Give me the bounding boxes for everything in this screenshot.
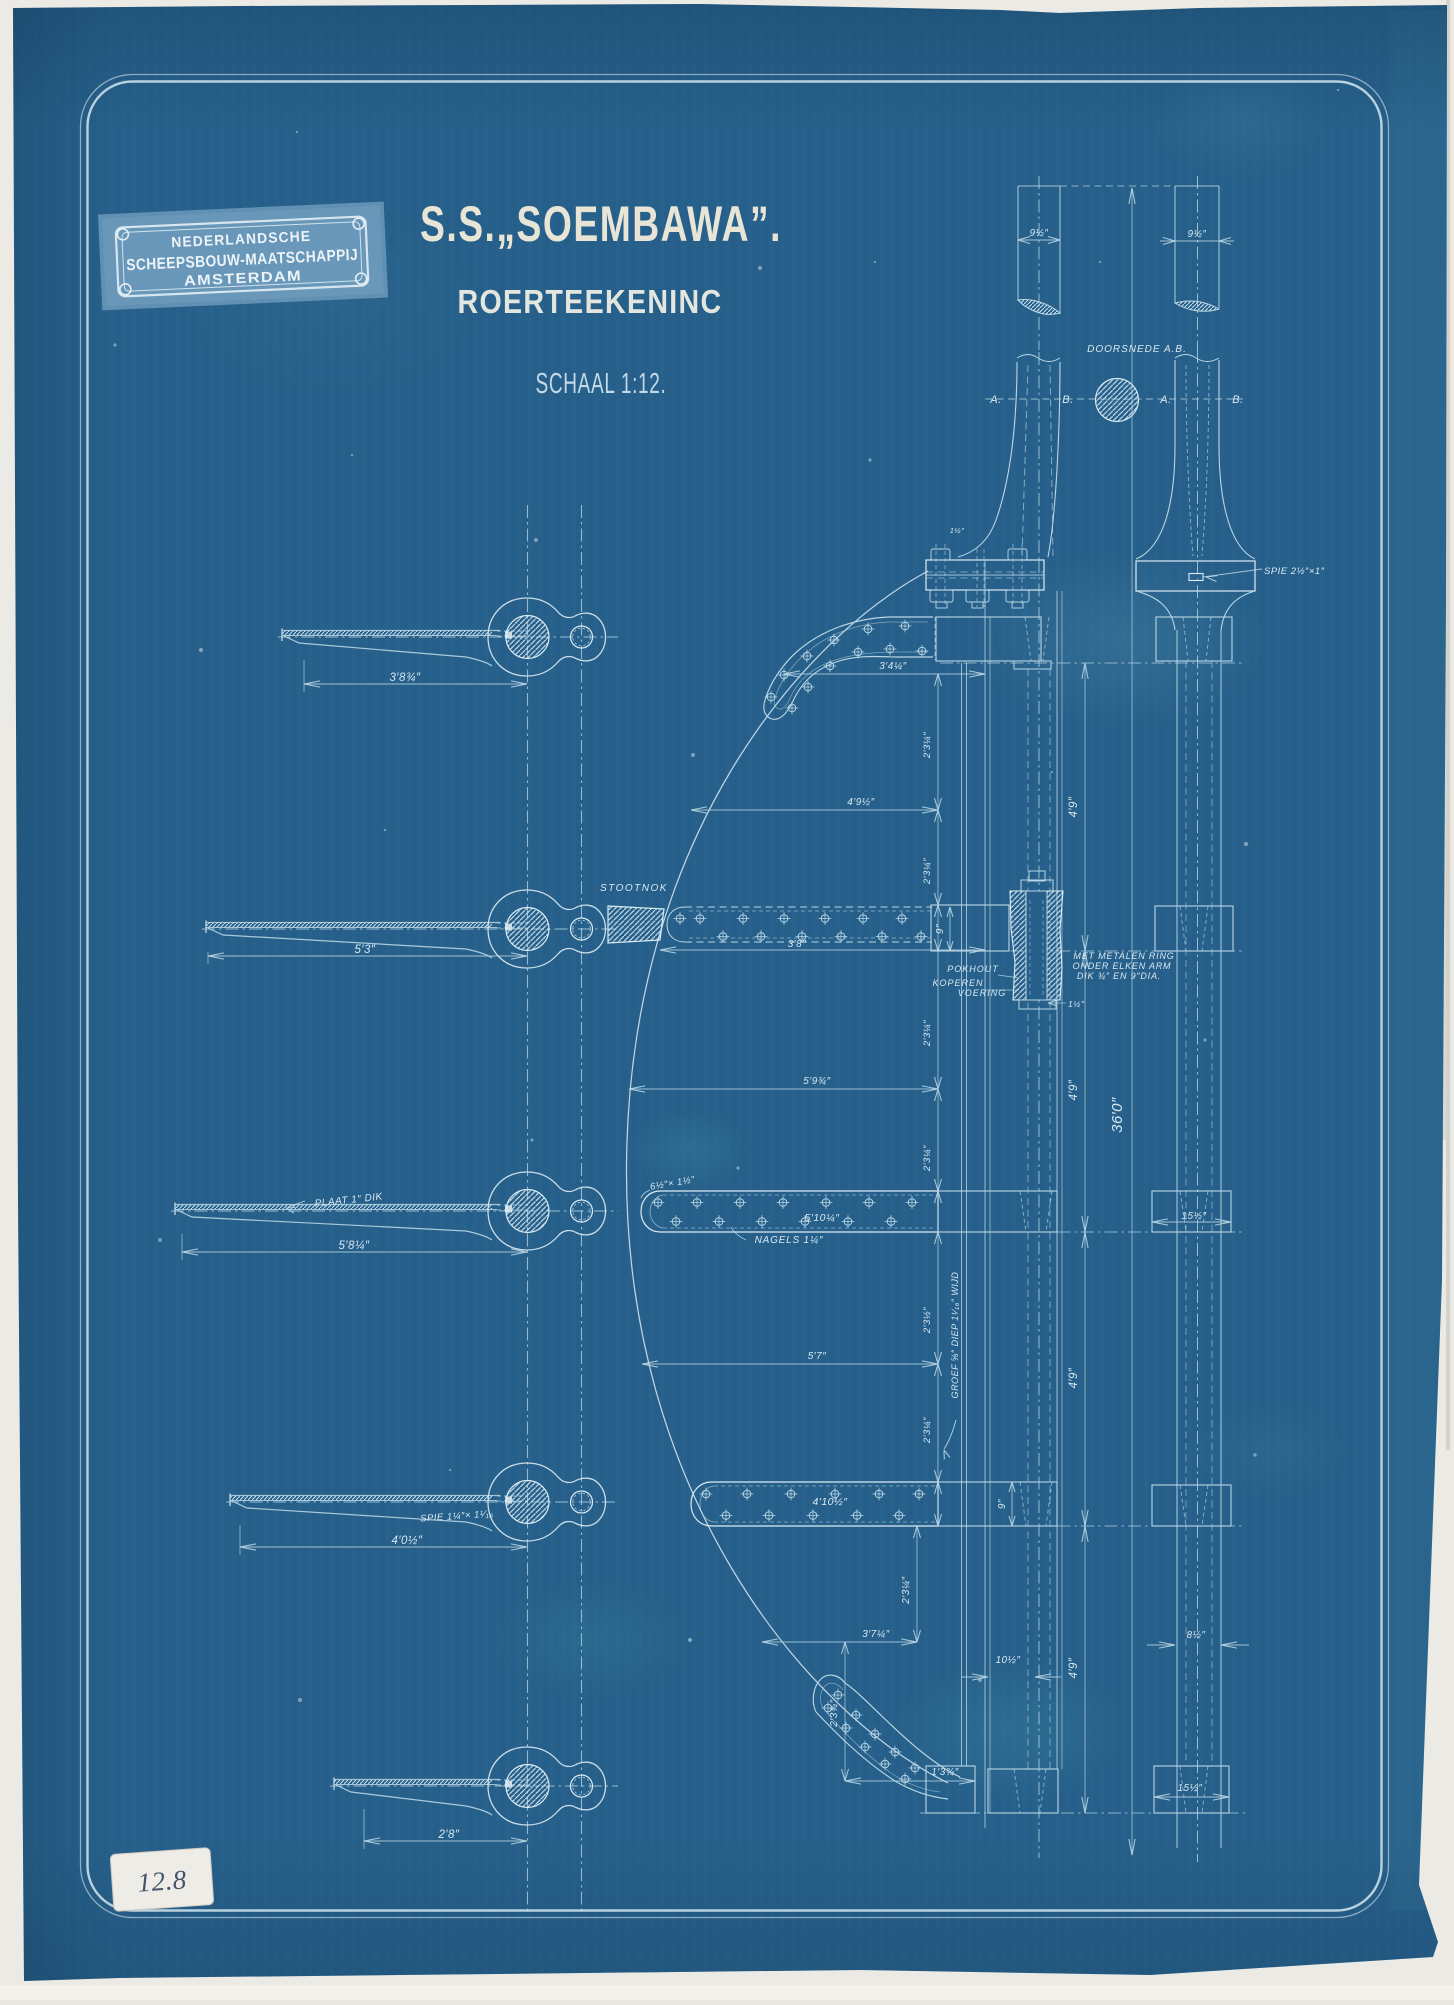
- svg-text:8½″: 8½″: [1187, 1630, 1206, 1641]
- svg-text:5′3″: 5′3″: [354, 944, 375, 956]
- svg-text:5′7″: 5′7″: [808, 1351, 827, 1362]
- svg-text:9″: 9″: [997, 1499, 1008, 1509]
- svg-text:2′8″: 2′8″: [437, 1829, 459, 1841]
- svg-text:10½″: 10½″: [995, 1655, 1020, 1666]
- svg-text:2′3¾″: 2′3¾″: [829, 1699, 840, 1727]
- svg-text:2′3¼″: 2′3¼″: [922, 1145, 933, 1172]
- svg-text:ONDER ELKEN ARM: ONDER ELKEN ARM: [1073, 961, 1172, 971]
- svg-text:15½″: 15½″: [1177, 1783, 1202, 1794]
- svg-text:4′9″: 4′9″: [1068, 1367, 1080, 1388]
- svg-text:B.: B.: [1062, 394, 1073, 406]
- svg-text:2′3¼″: 2′3¼″: [922, 858, 933, 885]
- svg-text:DOORSNEDE A.B.: DOORSNEDE A.B.: [1087, 344, 1187, 355]
- svg-text:SCHAAL 1:12.: SCHAAL 1:12.: [536, 368, 667, 400]
- svg-text:5′10¼″: 5′10¼″: [805, 1212, 841, 1224]
- svg-text:4′0½″: 4′0½″: [391, 1535, 423, 1547]
- svg-text:5′9¾″: 5′9¾″: [803, 1076, 830, 1087]
- svg-text:VOERING: VOERING: [958, 988, 1007, 998]
- svg-text:12.8: 12.8: [136, 1864, 187, 1897]
- svg-text:9½″: 9½″: [1188, 229, 1207, 240]
- svg-text:GROEF ⅝″ DIEP 1¹⁄₁₆″ WIJD: GROEF ⅝″ DIEP 1¹⁄₁₆″ WIJD: [950, 1272, 960, 1399]
- svg-text:3′8¾″: 3′8¾″: [389, 672, 421, 684]
- svg-text:STOOTNOK: STOOTNOK: [600, 883, 668, 894]
- svg-text:A.: A.: [989, 394, 1001, 406]
- svg-text:ROERTEEKENINC: ROERTEEKENINC: [458, 283, 723, 320]
- svg-text:3′8″: 3′8″: [788, 939, 807, 950]
- svg-text:4′9″: 4′9″: [1068, 796, 1080, 817]
- svg-text:2′3¼″: 2′3¼″: [922, 1020, 933, 1047]
- svg-text:5′8¼″: 5′8¼″: [338, 1240, 370, 1252]
- svg-text:9″: 9″: [935, 924, 946, 934]
- svg-text:2′3¼″: 2′3¼″: [922, 1417, 933, 1444]
- svg-text:KOPEREN: KOPEREN: [932, 978, 983, 988]
- svg-text:4′9″: 4′9″: [1068, 1079, 1080, 1100]
- svg-text:MET METALEN RING: MET METALEN RING: [1073, 951, 1174, 961]
- svg-text:4′9″: 4′9″: [1068, 1657, 1080, 1678]
- svg-text:1½″: 1½″: [950, 526, 965, 535]
- svg-text:2′3¼″: 2′3¼″: [900, 1576, 912, 1604]
- svg-text:S.S.„SOEMBAWA”.: S.S.„SOEMBAWA”.: [420, 196, 782, 252]
- svg-text:POKHOUT: POKHOUT: [947, 964, 999, 974]
- svg-text:2′3½″: 2′3½″: [922, 1307, 933, 1334]
- svg-text:4′10½″: 4′10½″: [813, 1496, 849, 1508]
- svg-text:B.: B.: [1232, 394, 1243, 406]
- svg-text:36′0″: 36′0″: [1109, 1097, 1126, 1133]
- svg-text:NAGELS 1¼″: NAGELS 1¼″: [755, 1234, 824, 1246]
- svg-text:SPIE 2½″×1″: SPIE 2½″×1″: [1264, 566, 1325, 577]
- svg-text:1½″: 1½″: [1068, 999, 1085, 1009]
- svg-text:DIK ¾″ EN 9″DIA.: DIK ¾″ EN 9″DIA.: [1077, 971, 1161, 981]
- svg-text:3′7¼″: 3′7¼″: [862, 1628, 889, 1640]
- svg-text:15½″: 15½″: [1181, 1211, 1206, 1222]
- svg-text:3′4¼″: 3′4¼″: [879, 660, 906, 672]
- svg-text:4′9½″: 4′9½″: [847, 797, 874, 808]
- svg-text:9½″: 9½″: [1030, 228, 1049, 239]
- svg-text:A.: A.: [1159, 394, 1171, 406]
- svg-text:2′3¼″: 2′3¼″: [922, 732, 933, 759]
